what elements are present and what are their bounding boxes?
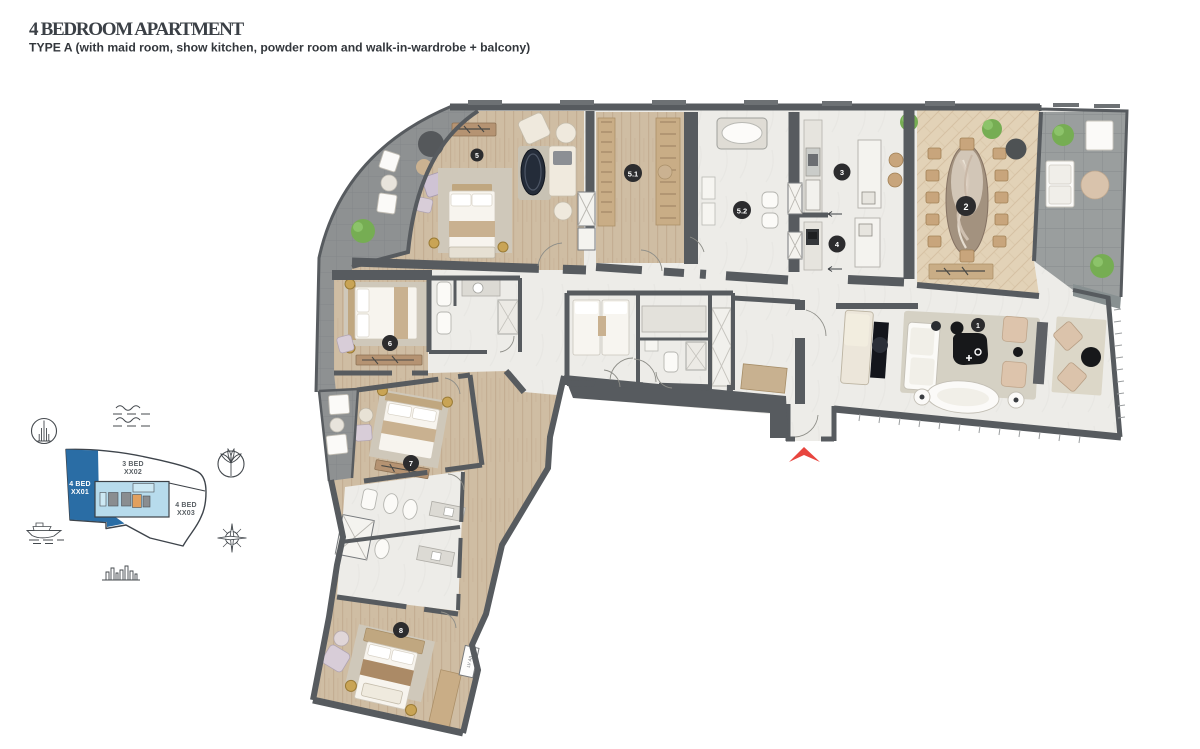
svg-text:XX02: XX02 — [124, 469, 142, 476]
svg-text:4 BED: 4 BED — [69, 481, 91, 488]
svg-text:5.1: 5.1 — [628, 170, 638, 179]
svg-text:4 BED: 4 BED — [175, 502, 197, 509]
svg-text:2: 2 — [963, 202, 968, 212]
svg-text:1: 1 — [976, 323, 980, 330]
svg-text:7: 7 — [409, 459, 413, 468]
svg-text:3 BED: 3 BED — [122, 461, 144, 468]
svg-text:6: 6 — [388, 339, 392, 348]
svg-text:XX03: XX03 — [177, 510, 195, 517]
svg-text:4 BEDROOM APARTMENT: 4 BEDROOM APARTMENT — [29, 19, 245, 40]
svg-text:3: 3 — [840, 168, 844, 177]
svg-text:5.2: 5.2 — [737, 207, 747, 216]
svg-text:XX01: XX01 — [71, 489, 89, 496]
svg-text:TYPE A (with maid room, show k: TYPE A (with maid room, show kitchen, po… — [29, 41, 530, 55]
svg-text:8: 8 — [399, 626, 403, 635]
svg-text:5: 5 — [475, 153, 479, 160]
